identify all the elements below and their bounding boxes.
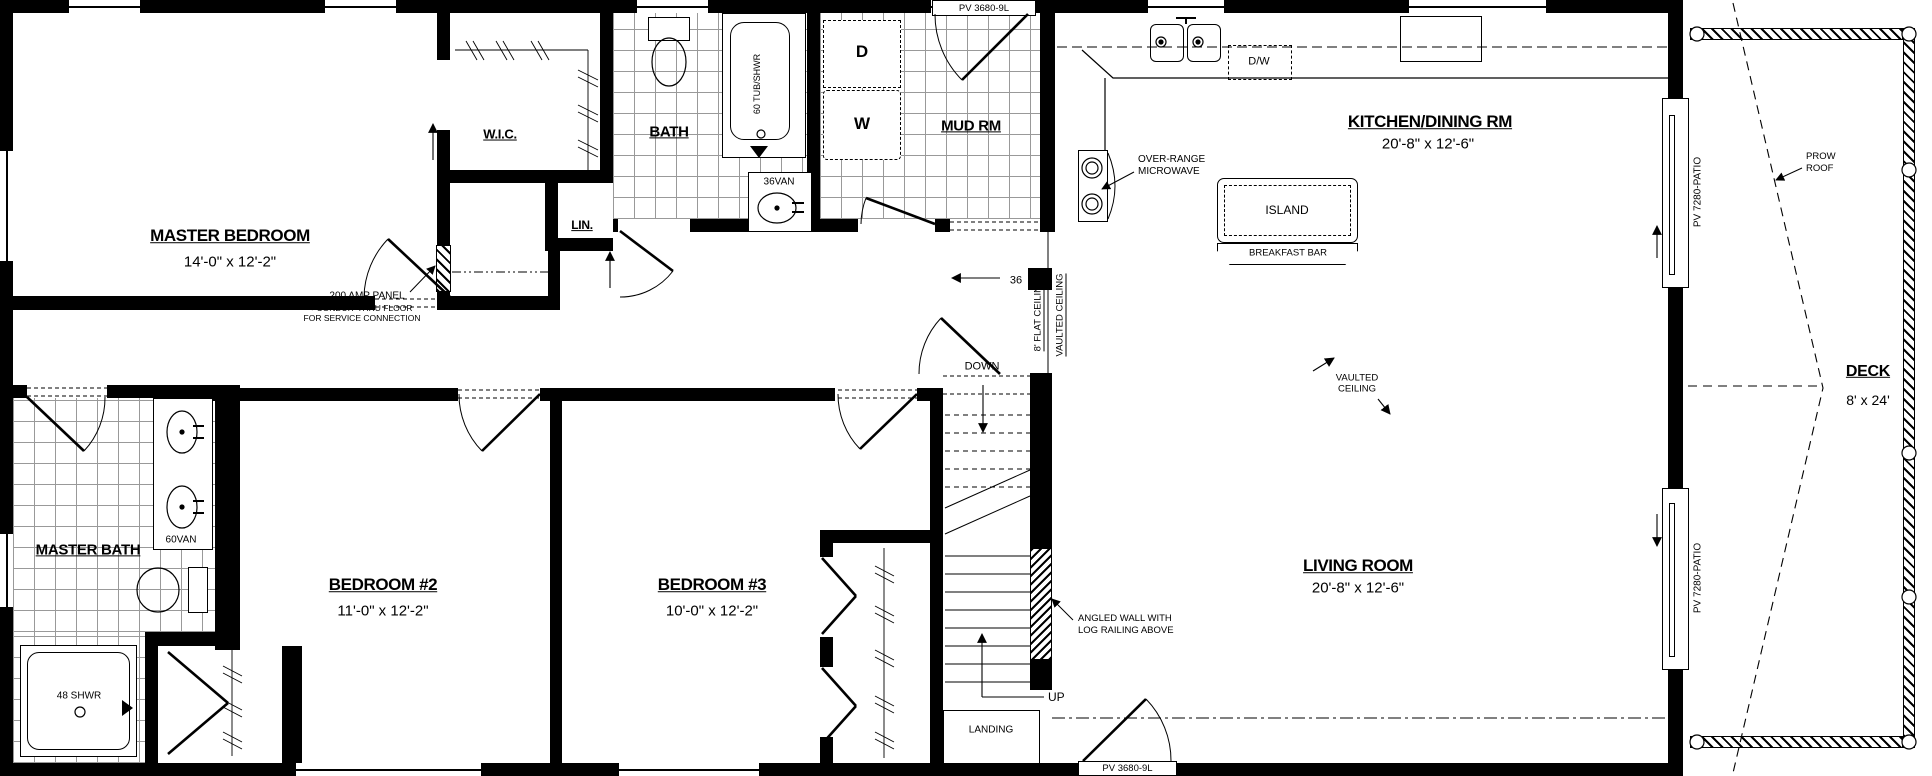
wall [13,385,27,398]
door-label-patio-top: PV 7280-PATIO [1693,157,1704,227]
stair-label-landing: LANDING [969,724,1013,736]
wall [107,385,215,398]
wall [282,646,302,763]
note-flat-ceiling: 8' FLAT CEILING [1033,279,1044,352]
deck-railing [1690,736,1903,748]
window [295,763,482,776]
room-label-lin: LIN. [571,219,592,233]
wall [613,219,618,232]
vanity-60 [153,398,213,550]
wall [0,763,295,776]
door-width-36: 36 [1010,275,1022,288]
note-otr-line2: MICROWAVE [1138,166,1200,178]
wall [1223,0,1408,13]
floor-plan: PV 3680-9L PV 3680-9L [0,0,1932,776]
room-dims-kitchen: 20'-8" x 12'-6" [1382,135,1474,152]
room-label-bath: BATH [649,123,688,140]
wall [1030,373,1052,548]
door-label-box: PV 3680-9L [1078,761,1177,776]
wall [437,170,613,183]
wall [1668,668,1683,776]
room-dims-bedroom3: 10'-0" x 12'-2" [666,602,758,619]
wall [600,13,613,183]
window [0,533,13,608]
wall [1668,0,1683,100]
wall [1035,0,1147,13]
note-prow-line2: ROOF [1806,163,1833,174]
fixture-label-60van: 60VAN [166,534,197,546]
window [0,150,13,262]
room-label-living: LIVING ROOM [1303,556,1413,576]
electrical-panel [436,245,451,292]
wall [213,388,458,401]
wall [545,183,558,245]
refrigerator [1400,16,1482,62]
fixture-label-breakfast-bar: BREAKFAST BAR [1249,249,1327,260]
toilet-tank [648,17,690,41]
room-label-master-bedroom: MASTER BEDROOM [150,226,310,246]
room-label-wic: W.I.C. [483,128,517,143]
window-label: PV 3680-9L [959,3,1009,14]
wall [0,606,13,776]
appliance-label-washer: W [854,114,870,134]
wall [215,385,240,650]
note-vaulted-ceiling-break: VAULTED CEILING [1055,273,1066,356]
wall [540,388,835,401]
wall [820,530,943,543]
wall [930,400,943,763]
wall [437,130,450,245]
wall [707,0,930,13]
wall [450,296,560,310]
wall [395,0,636,13]
deck-railing [1903,28,1915,748]
fixture-label-island: ISLAND [1265,204,1308,218]
room-label-master-bath: MASTER BATH [36,541,141,558]
wall [139,0,324,13]
wall [1040,13,1055,219]
wall [480,763,618,776]
room-label-bedroom3: BEDROOM #3 [658,575,766,595]
room-dims-master-bedroom: 14'-0" x 12'-2" [184,253,276,270]
window-label-box: PV 3680-9L [932,0,1036,16]
room-dims-living: 20'-8" x 12'-6" [1312,579,1404,596]
wall [145,646,158,763]
note-panel: 200 AMP PANEL [329,290,404,302]
note-angled-wall-line1: ANGLED WALL WITH [1078,613,1172,624]
note-vaulted-line2: CEILING [1338,385,1376,396]
angled-log-railing-wall [1030,548,1052,660]
stair-label-down: DOWN [965,361,1000,374]
wall [1668,285,1683,488]
range [1078,150,1108,222]
note-otr-line1: OVER-RANGE [1138,154,1205,166]
stair-landing [943,710,1040,763]
room-dims-deck: 8' x 24' [1846,392,1889,408]
room-label-kitchen: KITCHEN/DINING RM [1348,112,1512,132]
door-label-patio-bottom: PV 7280-PATIO [1693,543,1704,613]
deck-railing [1690,28,1903,40]
wall [935,219,950,232]
window [1408,0,1547,13]
wall [545,238,613,251]
wall [1175,763,1668,776]
kitchen-sink [1150,24,1184,62]
appliance-label-dryer: D [856,42,868,62]
window [618,763,760,776]
wall [437,13,450,60]
stair-label-up: UP [1048,690,1065,704]
door-label: PV 3680-9L [1102,763,1152,774]
window [636,0,709,13]
fixture-label-tub: 60 TUB/SHWR [752,54,762,114]
patio-door [1662,488,1689,670]
note-prow-line1: PROW [1806,151,1836,162]
patio-door [1662,98,1689,288]
window [324,0,397,13]
wall [758,763,1080,776]
fixture-label-36van: 36VAN [764,176,795,188]
note-panel-line2: FOR SERVICE CONNECTION [304,314,421,324]
room-dims-bedroom2: 11'-0" x 12'-2" [337,602,428,619]
kitchen-sink [1187,24,1221,62]
wall [548,251,560,310]
room-label-deck: DECK [1846,363,1890,381]
fixture-label-48shwr: 48 SHWR [57,690,101,702]
window [1147,0,1225,13]
wall [550,400,562,763]
wall [0,0,13,150]
room-label-bedroom2: BEDROOM #2 [329,575,437,595]
window [68,0,141,13]
room-label-mud-rm: MUD RM [941,117,1001,134]
toilet-tank [188,567,208,613]
wall [1040,219,1055,232]
wall [1545,0,1668,13]
wall [437,292,450,310]
note-angled-wall-line2: LOG RAILING ABOVE [1078,625,1174,636]
wall [820,637,833,667]
appliance-label-dw: D/W [1248,56,1269,69]
wall [145,632,240,646]
wall [820,737,833,763]
wall [1030,660,1052,690]
